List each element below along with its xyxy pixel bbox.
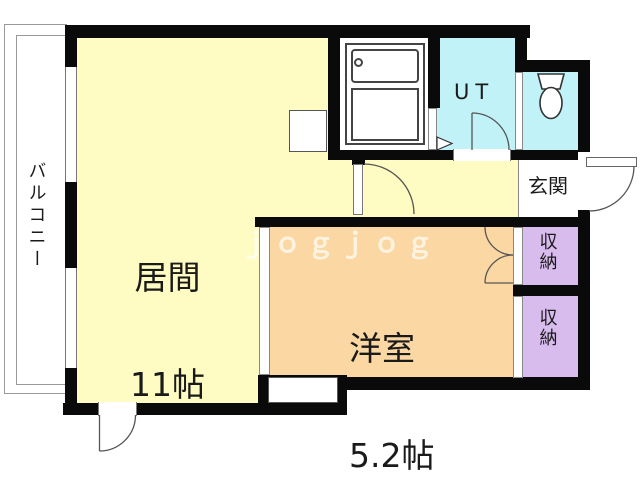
bathtub-drain-icon [354,58,363,67]
wall-top [65,25,530,38]
balcony-label: バルコニー [26,161,45,271]
wall-bath-ut [428,38,440,108]
western-room-size: 5.2帖 [349,438,434,474]
closet-door-bottom [513,296,523,378]
toilet-room-area [523,72,578,150]
western-room-name: 洋室 [349,331,434,367]
floorplan: バルコニー 居間 11帖 洋室 5.2帖 UT 玄関 収納 収納 ｊｏｇｊｏｇ [0,0,640,480]
kitchen-counter [289,110,327,152]
step-window [268,377,338,403]
entry-door-panel [586,157,637,167]
toilet-door [515,72,523,150]
western-room-label: 洋室 5.2帖 [349,260,434,480]
living-room-label: 居間 11帖 [95,189,240,474]
balcony-window-lower [65,268,77,368]
ut-door-threshold [453,149,511,161]
living-room-size: 11帖 [95,367,240,403]
ut-label: UT [454,81,494,104]
bathroom-door [428,108,437,150]
entrance-label: 玄関 [518,176,578,198]
wall-hall-door-stub [352,150,365,165]
closet-door-top [513,227,523,285]
living-room-name: 居間 [95,260,240,296]
storage-bottom-label: 収納 [537,308,556,348]
balcony-window-upper [65,67,77,182]
wall-bath-left [328,38,340,160]
wall-storage-divider [513,285,590,296]
watermark: ｊｏｇｊｏｇ [241,221,439,260]
entry-door-arc [589,166,634,211]
bathtub-washing-area [351,88,419,141]
storage-top-label: 収納 [537,232,556,272]
hall-door-panel [353,164,363,215]
